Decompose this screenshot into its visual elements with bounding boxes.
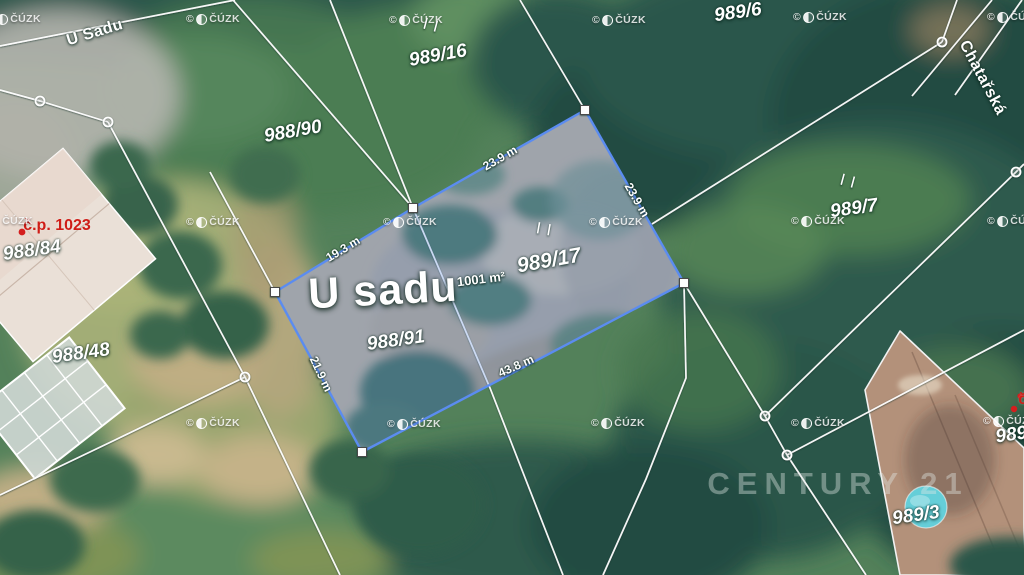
cuzk-watermark: ©ČÚZK [983, 415, 1024, 427]
parcel-label-989-6: 989/6 [713, 0, 763, 27]
cuzk-watermark: ©ČÚZK [791, 215, 845, 227]
cuzk-logo-icon [602, 15, 613, 26]
land-use-mark: | | [422, 15, 441, 33]
parcel-label-989-3: 989/3 [891, 502, 941, 530]
cuzk-logo-icon [993, 416, 1004, 427]
street-label-u-sadu: U Sadu [65, 16, 126, 50]
cuzk-logo-icon [801, 216, 812, 227]
cuzk-watermark: ©ČÚZK [186, 216, 240, 228]
parcel-label-988-91: 988/91 [366, 326, 427, 356]
map-labels-layer: CENTURY 21 U SaduChatařskáU sadu989/1698… [0, 0, 1024, 575]
cuzk-watermark: ©ČÚZK [591, 417, 645, 429]
dimension-label-lower-left: 21.9 m [307, 354, 335, 394]
century21-watermark: CENTURY 21 [707, 466, 968, 502]
cuzk-watermark: ©ČÚZK [387, 418, 441, 430]
cuzk-logo-icon [196, 14, 207, 25]
cuzk-watermark: ©ČÚZK [186, 417, 240, 429]
area-label: 1001 m² [456, 269, 506, 290]
building-number-label: č.p. 1023 [23, 217, 91, 235]
cuzk-logo-icon [397, 419, 408, 430]
street-label-chatarska: Chatařská [955, 38, 1009, 119]
cuzk-logo-icon [393, 217, 404, 228]
parcel-label-988-84: 988/84 [2, 236, 63, 266]
cuzk-logo-icon [997, 12, 1008, 23]
cuzk-watermark: ©ČÚZK [383, 216, 437, 228]
parcel-label-988-90: 988/90 [262, 116, 323, 148]
cuzk-watermark: ©ČÚZK [987, 11, 1024, 23]
cuzk-watermark: ©ČÚZK [592, 14, 646, 26]
cuzk-watermark: ©ČÚZK [589, 216, 643, 228]
land-use-mark: | | [839, 171, 858, 189]
dimension-label-upper-left: 19.3 m [323, 233, 362, 264]
cuzk-logo-icon [0, 14, 8, 25]
cuzk-logo-icon [196, 418, 207, 429]
cuzk-logo-icon [997, 216, 1008, 227]
cuzk-watermark: ©ČÚZK [987, 215, 1024, 227]
cuzk-watermark: ©ČÚZK [791, 417, 845, 429]
cuzk-watermark: ©ČÚZK [0, 13, 41, 25]
dimension-label-top: 23.9 m [480, 143, 519, 174]
building-number-label-clipped: č.p. [1018, 391, 1024, 409]
land-use-mark: | | [536, 220, 554, 237]
parcel-label-989-17: 989/17 [515, 244, 582, 279]
cuzk-logo-icon [196, 217, 207, 228]
cuzk-logo-icon [803, 12, 814, 23]
cuzk-logo-icon [801, 418, 812, 429]
cuzk-watermark: ©ČÚZK [0, 215, 33, 227]
cuzk-logo-icon [599, 217, 610, 228]
street-label-u-sadu-big: U sadu [307, 263, 459, 320]
cuzk-watermark: ©ČÚZK [186, 13, 240, 25]
cuzk-logo-icon [399, 15, 410, 26]
parcel-label-989-16: 989/16 [407, 40, 468, 72]
cadastral-aerial-map: CENTURY 21 U SaduChatařskáU sadu989/1698… [0, 0, 1024, 575]
parcel-label-988-48: 988/48 [51, 339, 112, 369]
cuzk-logo-icon [601, 418, 612, 429]
dimension-label-right: 23.9 m [622, 180, 653, 219]
dimension-label-bottom: 43.8 m [496, 352, 536, 380]
cuzk-watermark: ©ČÚZK [793, 11, 847, 23]
